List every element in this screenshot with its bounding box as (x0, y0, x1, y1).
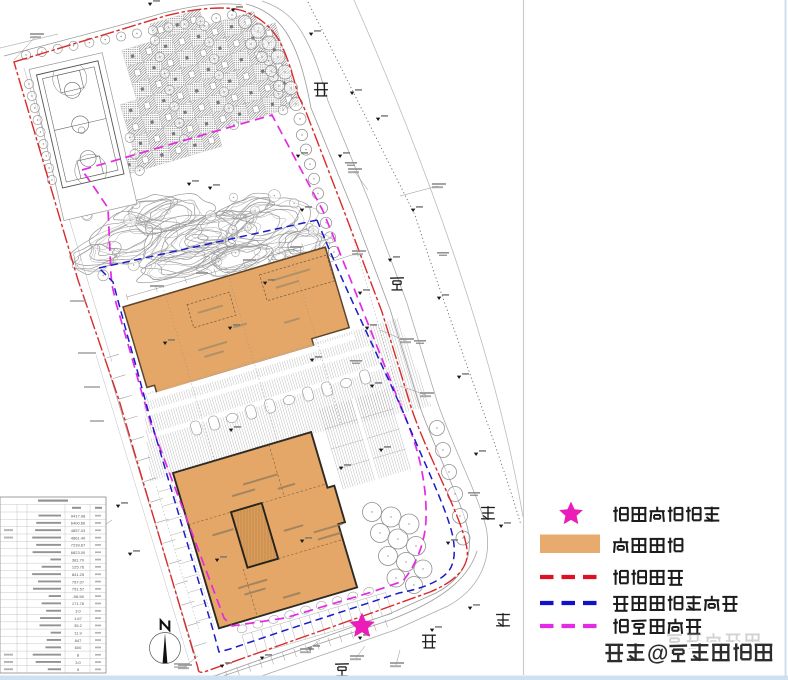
svg-text:381.70: 381.70 (72, 557, 85, 562)
svg-text:600: 600 (75, 645, 82, 650)
svg-text:7239.67: 7239.67 (71, 543, 86, 548)
svg-text:125.76: 125.76 (72, 565, 85, 570)
svg-text:35.2: 35.2 (74, 623, 83, 628)
svg-text:6400.66: 6400.66 (71, 521, 86, 526)
svg-text:-58.98: -58.98 (72, 594, 84, 599)
svg-text:4857.03: 4857.03 (71, 528, 86, 533)
svg-text:6823.00: 6823.00 (71, 550, 86, 555)
svg-text:3.0: 3.0 (75, 660, 81, 665)
svg-text:847: 847 (75, 638, 82, 643)
svg-text:841.25: 841.25 (72, 572, 85, 577)
svg-text:171.76: 171.76 (72, 601, 85, 606)
svg-text:1.67: 1.67 (74, 616, 83, 621)
svg-text:751.57: 751.57 (72, 587, 85, 592)
svg-text:757.07: 757.07 (72, 579, 85, 584)
svg-text:11.9: 11.9 (74, 631, 82, 636)
svg-text:9417.98: 9417.98 (71, 513, 86, 518)
svg-text:4861.40: 4861.40 (71, 535, 86, 540)
svg-text:3.0: 3.0 (75, 609, 81, 614)
svg-text:@: @ (647, 641, 668, 666)
